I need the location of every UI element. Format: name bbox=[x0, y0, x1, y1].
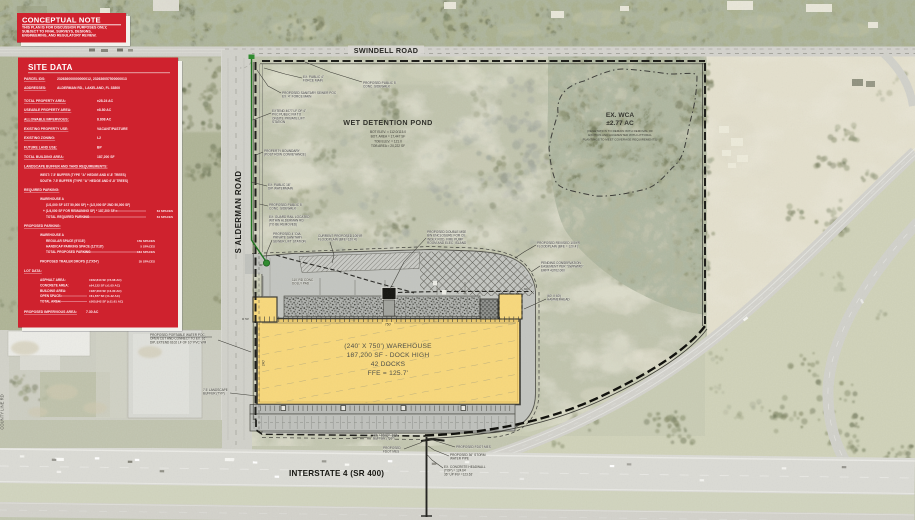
svg-text:±187,200 SF (±4.30 AC): ±187,200 SF (±4.30 AC) bbox=[89, 289, 122, 293]
svg-text:5 SPACES: 5 SPACES bbox=[140, 245, 155, 249]
svg-text:WEST: 7.5' BUFFER (TYPE "A": WEST: 7.5' BUFFER (TYPE "A" HEDGE AND 6'… bbox=[40, 173, 126, 177]
svg-text:TOTAL PROPERTY AREA:: TOTAL PROPERTY AREA: bbox=[24, 99, 66, 103]
svg-text:SOUTH: 7.5' BUFFER (TYPE "A": SOUTH: 7.5' BUFFER (TYPE "A" HEDGE AND 6… bbox=[40, 179, 128, 183]
svg-text:BP: BP bbox=[97, 146, 102, 150]
svg-text:PROPOSED IMPERVIOUS AREA:: PROPOSED IMPERVIOUS AREA: bbox=[24, 310, 77, 314]
svg-text:7.30 AC: 7.30 AC bbox=[86, 310, 99, 314]
svg-text:187,200 SF: 187,200 SF bbox=[97, 155, 115, 159]
svg-text:CONCRETE AREA:: CONCRETE AREA: bbox=[40, 283, 69, 287]
svg-text:232636000000000012, 2326360575: 232636000000000012, 232636057500000013 bbox=[57, 77, 127, 81]
svg-text:±61,677 SF (±1.42 AC): ±61,677 SF (±1.42 AC) bbox=[89, 294, 120, 298]
svg-text:PROPOSED PARKING:: PROPOSED PARKING: bbox=[24, 224, 61, 228]
svg-text:HANDICAP PARKING SPACE (12'X18: HANDICAP PARKING SPACE (12'X18') bbox=[46, 245, 103, 249]
svg-text:LANDSCAPE BUFFER AND YARD REQU: LANDSCAPE BUFFER AND YARD REQUIREMENTS: bbox=[24, 165, 108, 169]
svg-text:ALLOWABLE IMPERVIOUS:: ALLOWABLE IMPERVIOUS: bbox=[24, 118, 69, 122]
svg-text:BUILDING AREA:: BUILDING AREA: bbox=[40, 289, 66, 293]
svg-text:+ (1/4,000 SF FOR REMAINING SF: + (1/4,000 SF FOR REMAINING SF) * 187,20… bbox=[43, 209, 118, 213]
svg-text:REGULAR SPACE (9'X18'): REGULAR SPACE (9'X18') bbox=[46, 239, 85, 243]
svg-text:USEABLE PROPERTY AREA:: USEABLE PROPERTY AREA: bbox=[24, 108, 71, 112]
svg-text:WAREHOUSE A: WAREHOUSE A bbox=[40, 197, 65, 201]
svg-text:REQUIRED PARKING:: REQUIRED PARKING: bbox=[24, 188, 59, 192]
svg-text:VACANT/PASTURE: VACANT/PASTURE bbox=[97, 127, 129, 131]
svg-text:SITE DATA: SITE DATA bbox=[28, 63, 73, 72]
svg-text:159 SPACES: 159 SPACES bbox=[137, 239, 155, 243]
svg-text:8.808 AC: 8.808 AC bbox=[97, 118, 112, 122]
svg-text:FUTURE LAND USE:: FUTURE LAND USE: bbox=[24, 146, 57, 150]
svg-text:35 SPACES: 35 SPACES bbox=[139, 260, 155, 264]
svg-text:64 SPACES: 64 SPACES bbox=[157, 209, 173, 213]
svg-text:TOTAL AREA:: TOTAL AREA: bbox=[40, 300, 61, 304]
svg-text:LOT DATA:: LOT DATA: bbox=[24, 269, 42, 273]
svg-text:I-2: I-2 bbox=[97, 136, 101, 140]
svg-text:PROPOSED TRAILER DROPS (12'X54: PROPOSED TRAILER DROPS (12'X54') bbox=[40, 260, 99, 264]
svg-text:ADDRESSES:: ADDRESSES: bbox=[24, 86, 46, 90]
svg-text:EXISTING PROPERTY USE:: EXISTING PROPERTY USE: bbox=[24, 127, 68, 131]
svg-text:TOTAL BUILDING AREA:: TOTAL BUILDING AREA: bbox=[24, 155, 64, 159]
svg-text:±64,122 SF (±1.05 AC): ±64,122 SF (±1.05 AC) bbox=[89, 283, 120, 287]
svg-text:EXISTING ZONING:: EXISTING ZONING: bbox=[24, 136, 55, 140]
svg-text:(1/1,000 SF 1ST 50,000 SF) + (: (1/1,000 SF 1ST 50,000 SF) + (1/2,000 SF… bbox=[46, 203, 130, 207]
svg-text:ALDERMAN RD., LAKELAND, FL 338: ALDERMAN RD., LAKELAND, FL 33800 bbox=[57, 86, 120, 90]
svg-text:64 SPACES: 64 SPACES bbox=[157, 215, 173, 219]
svg-text:±28.24 AC: ±28.24 AC bbox=[97, 99, 114, 103]
svg-text:±505,842 SF (±11.61 AC): ±505,842 SF (±11.61 AC) bbox=[89, 300, 123, 304]
svg-text:±222,843 SF (±5.08 AC): ±222,843 SF (±5.08 AC) bbox=[89, 278, 122, 282]
svg-text:PARCEL IDS:: PARCEL IDS: bbox=[24, 77, 45, 81]
svg-text:WAREHOUSE A: WAREHOUSE A bbox=[40, 233, 65, 237]
svg-text:±8.80 AC: ±8.80 AC bbox=[97, 108, 112, 112]
svg-text:CONCEPTUAL NOTE: CONCEPTUAL NOTE bbox=[22, 16, 101, 25]
svg-text:ENGINEERING, AND REGULATORY RE: ENGINEERING, AND REGULATORY REVIEW. bbox=[22, 34, 96, 38]
svg-text:OPEN SPACE:: OPEN SPACE: bbox=[40, 294, 62, 298]
svg-text:ASPHALT AREA:: ASPHALT AREA: bbox=[40, 278, 66, 282]
